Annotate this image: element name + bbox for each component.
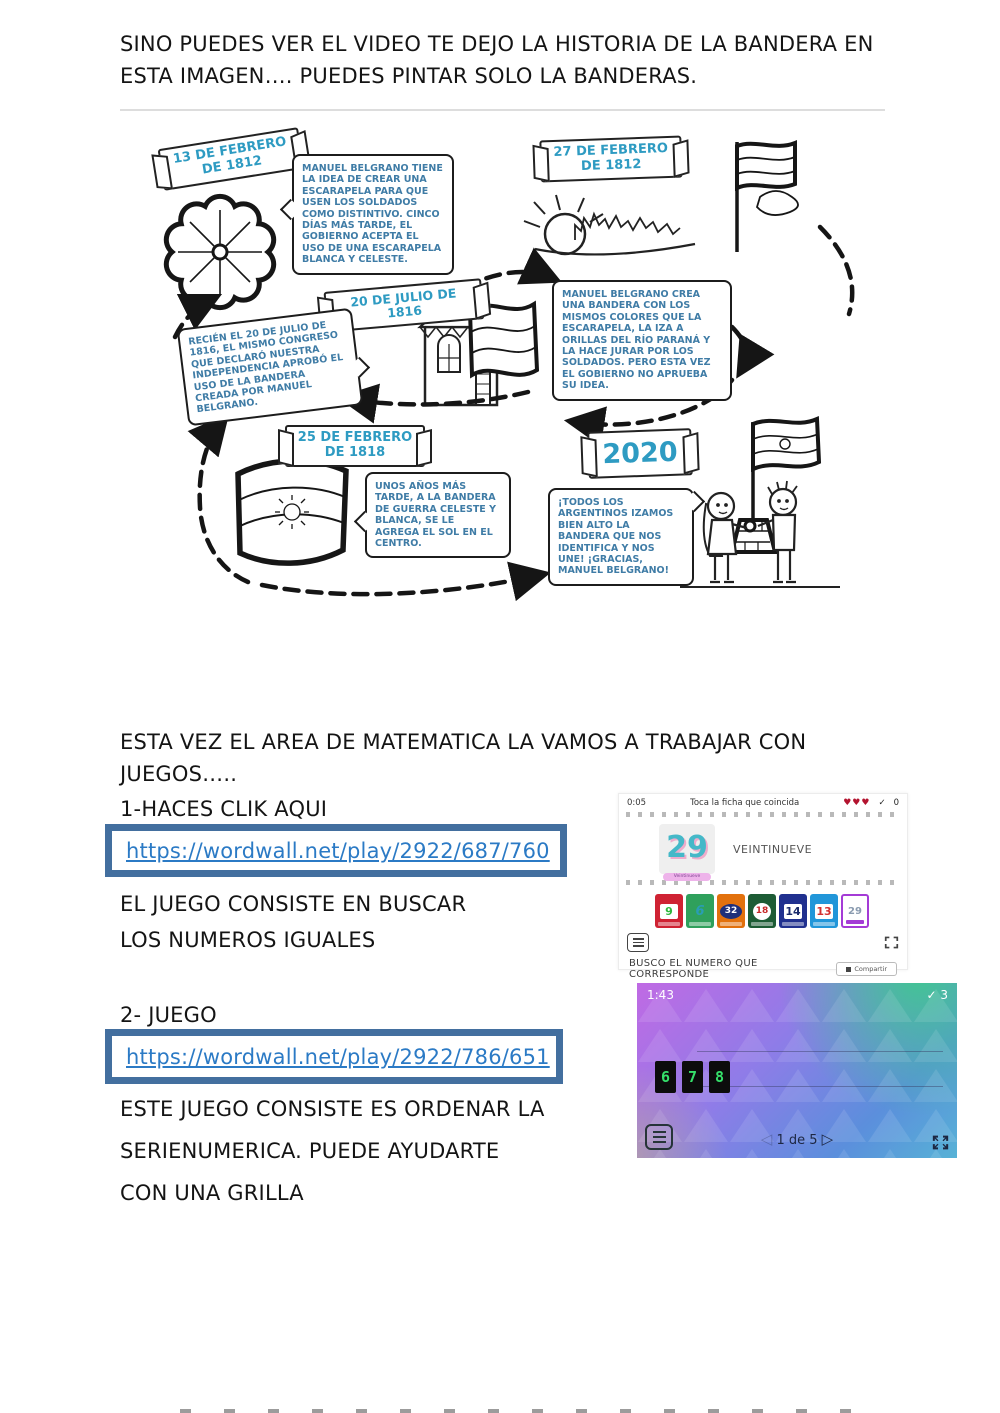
banner-2020: 2020 [587,428,693,479]
flag-1818-icon [238,461,346,563]
tile-number: 6 [691,904,709,919]
divider-line [120,109,885,111]
cutoff-next-line [180,1409,880,1413]
banner-25-febrero-1818: 25 DE FEBRERO DE 1818 [285,425,425,467]
share-button-label: Compartir [854,965,887,973]
game2-link[interactable]: https://wordwall.net/play/2922/786/651 [126,1045,550,1069]
tile-word-strip [658,922,680,926]
game2-score: 3 [940,988,948,1002]
worksheet-page: SINO PUEDES VER EL VIDEO TE DEJO LA HIST… [0,0,1000,1413]
menu-button[interactable] [627,933,649,952]
pagination: ◁ 1 de 5 ▷ [637,1130,957,1148]
tile-number: 14 [784,904,802,919]
tile-word-strip [751,922,773,926]
share-icon [846,967,851,972]
digit-tiles-row: 6 7 8 [655,1061,730,1093]
tile-word-strip [689,922,711,926]
number-tile[interactable]: 9 [655,894,683,928]
sun-skyline-icon [524,195,695,254]
note-bandera-creada: MANUEL BELGRANO CREA UNA BANDERA CON LOS… [552,280,732,401]
prompt-word: VEINTINUEVE [733,843,812,856]
digit-tile[interactable]: 6 [655,1061,676,1093]
number-tile[interactable]: 13 [810,894,838,928]
link-box-2: https://wordwall.net/play/2922/786/651 [105,1029,563,1084]
math-intro: ESTA VEZ EL AREA DE MATEMATICA LA VAMOS … [120,726,888,790]
answer-tiles-row: 9 6 32 18 14 13 29 [619,887,907,932]
game1-screenshot: 0:05 Toca la ficha que coincida ♥♥♥ ✓ 0 … [618,793,908,970]
tile-word-strip [782,922,804,926]
note-sol-centro: UNOS AÑOS MÁS TARDE, A LA BANDERA DE GUE… [365,472,511,558]
tile-number: 13 [815,904,833,919]
filmstrip-top [626,812,900,817]
game2-timer: 1:43 [647,988,674,1002]
next-page-icon[interactable]: ▷ [822,1130,834,1148]
escarapela-icon [166,196,273,307]
digit-tile[interactable]: 7 [682,1061,703,1093]
number-tile[interactable]: 29 [841,894,869,928]
note-escarapela: MANUEL BELGRANO TIENE LA IDEA DE CREAR U… [292,154,454,275]
sequence-line-top [697,1051,943,1052]
game2-description-line2: SERIENUMERICA. PUEDE AYUDARTE [120,1135,499,1167]
tile-number: 9 [660,904,678,919]
lives-hearts-icon: ♥♥♥ [843,798,870,808]
tile-word-strip [813,922,835,926]
step2-label: 2- JUEGO [120,1003,217,1027]
tile-word-strip [720,922,742,926]
number-tile[interactable]: 18 [748,894,776,928]
game1-score: 0 [894,798,899,808]
number-tile[interactable]: 14 [779,894,807,928]
step1-label: 1-HACES CLIK AQUI [120,797,327,821]
fullscreen-icon[interactable] [884,936,899,949]
game2-description-line1: ESTE JUEGO CONSISTE ES ORDENAR LA [120,1093,545,1125]
prompt-card-row: 29 Veintinueve VEINTINUEVE [619,819,907,878]
tile-number: 29 [846,904,864,919]
tile-word-strip [846,920,864,924]
game2-description-line3: CON UNA GRILLA [120,1177,304,1209]
game1-link[interactable]: https://wordwall.net/play/2922/687/760 [126,839,550,863]
game1-description: EL JUEGO CONSISTE EN BUSCAR LOS NUMEROS … [120,886,510,958]
activity-title: BUSCO EL NUMERO QUE CORRESPONDE [629,958,836,980]
number-tile[interactable]: 32 [717,894,745,928]
banner-27-febrero-1812: 27 DE FEBRERO DE 1812 [539,136,682,183]
tile-number: 18 [753,903,771,920]
prompt-card-number: 29 [659,824,715,872]
prev-page-icon[interactable]: ◁ [761,1130,773,1148]
tile-number: 32 [720,904,742,919]
game2-check-icon: ✓ [926,988,936,1002]
flag-history-illustration: 13 DE FEBRERO DE 1812 27 DE FEBRERO DE 1… [120,122,885,627]
page-indicator: 1 de 5 [776,1133,817,1148]
fullscreen-icon[interactable] [932,1135,949,1150]
sequence-line-bottom [697,1086,943,1087]
flag-1812-icon [737,142,798,252]
game1-timer: 0:05 [627,798,646,808]
link-box-1: https://wordwall.net/play/2922/687/760 [105,824,567,877]
game1-header: 0:05 Toca la ficha que coincida ♥♥♥ ✓ 0 [619,794,907,810]
number-tile[interactable]: 6 [686,894,714,928]
share-button[interactable]: Compartir [836,962,897,976]
digit-tile[interactable]: 8 [709,1061,730,1093]
game2-score-badge: ✓ 3 [926,988,948,1002]
game1-check-icon: ✓ [878,798,885,808]
intro-paragraph: SINO PUEDES VER EL VIDEO TE DEJO LA HIST… [120,28,910,92]
note-gracias-belgrano: ¡TODOS LOS ARGENTINOS IZAMOS BIEN ALTO L… [548,488,694,586]
game2-screenshot: 1:43 ✓ 3 6 7 8 ◁ 1 de 5 ▷ [637,983,957,1158]
prompt-card-label: Veintinueve [663,873,711,881]
game1-title: Toca la ficha que coincida [690,798,799,808]
prompt-card: 29 Veintinueve [659,824,715,874]
